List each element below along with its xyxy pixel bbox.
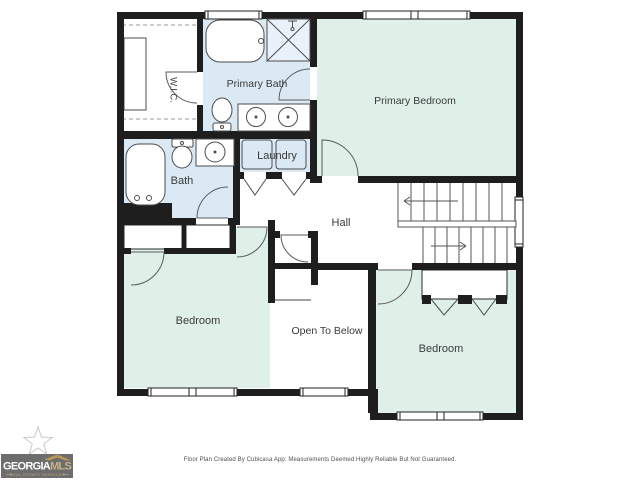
window <box>300 388 348 396</box>
closet-box <box>186 225 230 249</box>
wall-segment <box>268 263 318 269</box>
floor-plan-page: W.I.C. Primary Bath Primary Bedroom Laun… <box>0 0 640 480</box>
wall-segment <box>458 295 472 304</box>
wall-segment <box>496 295 507 304</box>
closet-shelf <box>124 38 146 110</box>
wall-segment <box>412 263 516 270</box>
tub-faucet-icon <box>259 39 264 44</box>
floor-plan-drawing: W.I.C. Primary Bath Primary Bedroom Laun… <box>0 0 640 480</box>
bifold-door-chevron <box>244 179 266 195</box>
room-label-bath: Bath <box>171 175 194 187</box>
wall-segment <box>275 231 280 238</box>
room-label-bedroom-right: Bedroom <box>419 343 464 355</box>
sink-icon <box>196 139 234 166</box>
closet-box <box>422 270 507 299</box>
wall-segment <box>311 238 318 285</box>
wall-segment <box>268 220 275 303</box>
double-sink-vanity-icon <box>238 104 310 131</box>
wall-segment <box>117 248 131 254</box>
wall-segment <box>117 131 317 139</box>
closet-box <box>124 225 182 249</box>
room-label-wic: W.I.C. <box>167 77 178 103</box>
logo-tagline: REAL ESTATE SERVICES <box>10 473 65 477</box>
room-label-open-to-below: Open To Below <box>291 325 362 337</box>
room-label-bedroom-left: Bedroom <box>176 315 221 327</box>
wall-segment <box>266 172 282 179</box>
toilet-icon <box>172 139 193 168</box>
bifold-door-chevron <box>282 179 306 195</box>
wall-segment <box>164 248 236 254</box>
window <box>148 388 237 396</box>
wall-segment <box>318 263 378 270</box>
bathtub-icon <box>126 144 165 205</box>
door-arc <box>281 235 308 262</box>
wall-segment <box>310 12 317 67</box>
wall-segment <box>306 172 317 179</box>
logo-star-icon <box>24 427 53 454</box>
wall-segment <box>422 295 431 304</box>
footer-disclaimer: Floor Plan Created By Cubicasa App: Meas… <box>0 457 640 464</box>
georgiamls-logo: GEORGIAMLS REAL ESTATE SERVICES <box>0 424 80 480</box>
wall-segment <box>308 231 318 238</box>
room-label-primary-bedroom: Primary Bedroom <box>374 95 456 107</box>
window <box>397 412 483 420</box>
wall-segment <box>197 12 203 72</box>
room-label-hall: Hall <box>332 217 351 229</box>
wall-chase <box>120 203 172 225</box>
wall-segment <box>182 224 186 250</box>
wall-segment <box>197 105 203 131</box>
toilet-icon <box>212 98 232 131</box>
room-label-laundry: Laundry <box>257 150 297 162</box>
bathtub-icon <box>206 20 264 62</box>
wall-segment <box>358 176 523 183</box>
room-label-primary-bath: Primary Bath <box>227 78 288 90</box>
stairs <box>398 183 516 263</box>
wall-segment <box>240 172 244 179</box>
wall-segment <box>310 100 317 183</box>
shower-icon <box>267 19 310 61</box>
wall-segment <box>368 270 376 413</box>
stair-direction-arrow-down <box>431 242 466 250</box>
window <box>363 11 470 19</box>
window <box>205 11 262 19</box>
wall-segment <box>230 220 236 254</box>
stair-railing <box>398 221 516 227</box>
